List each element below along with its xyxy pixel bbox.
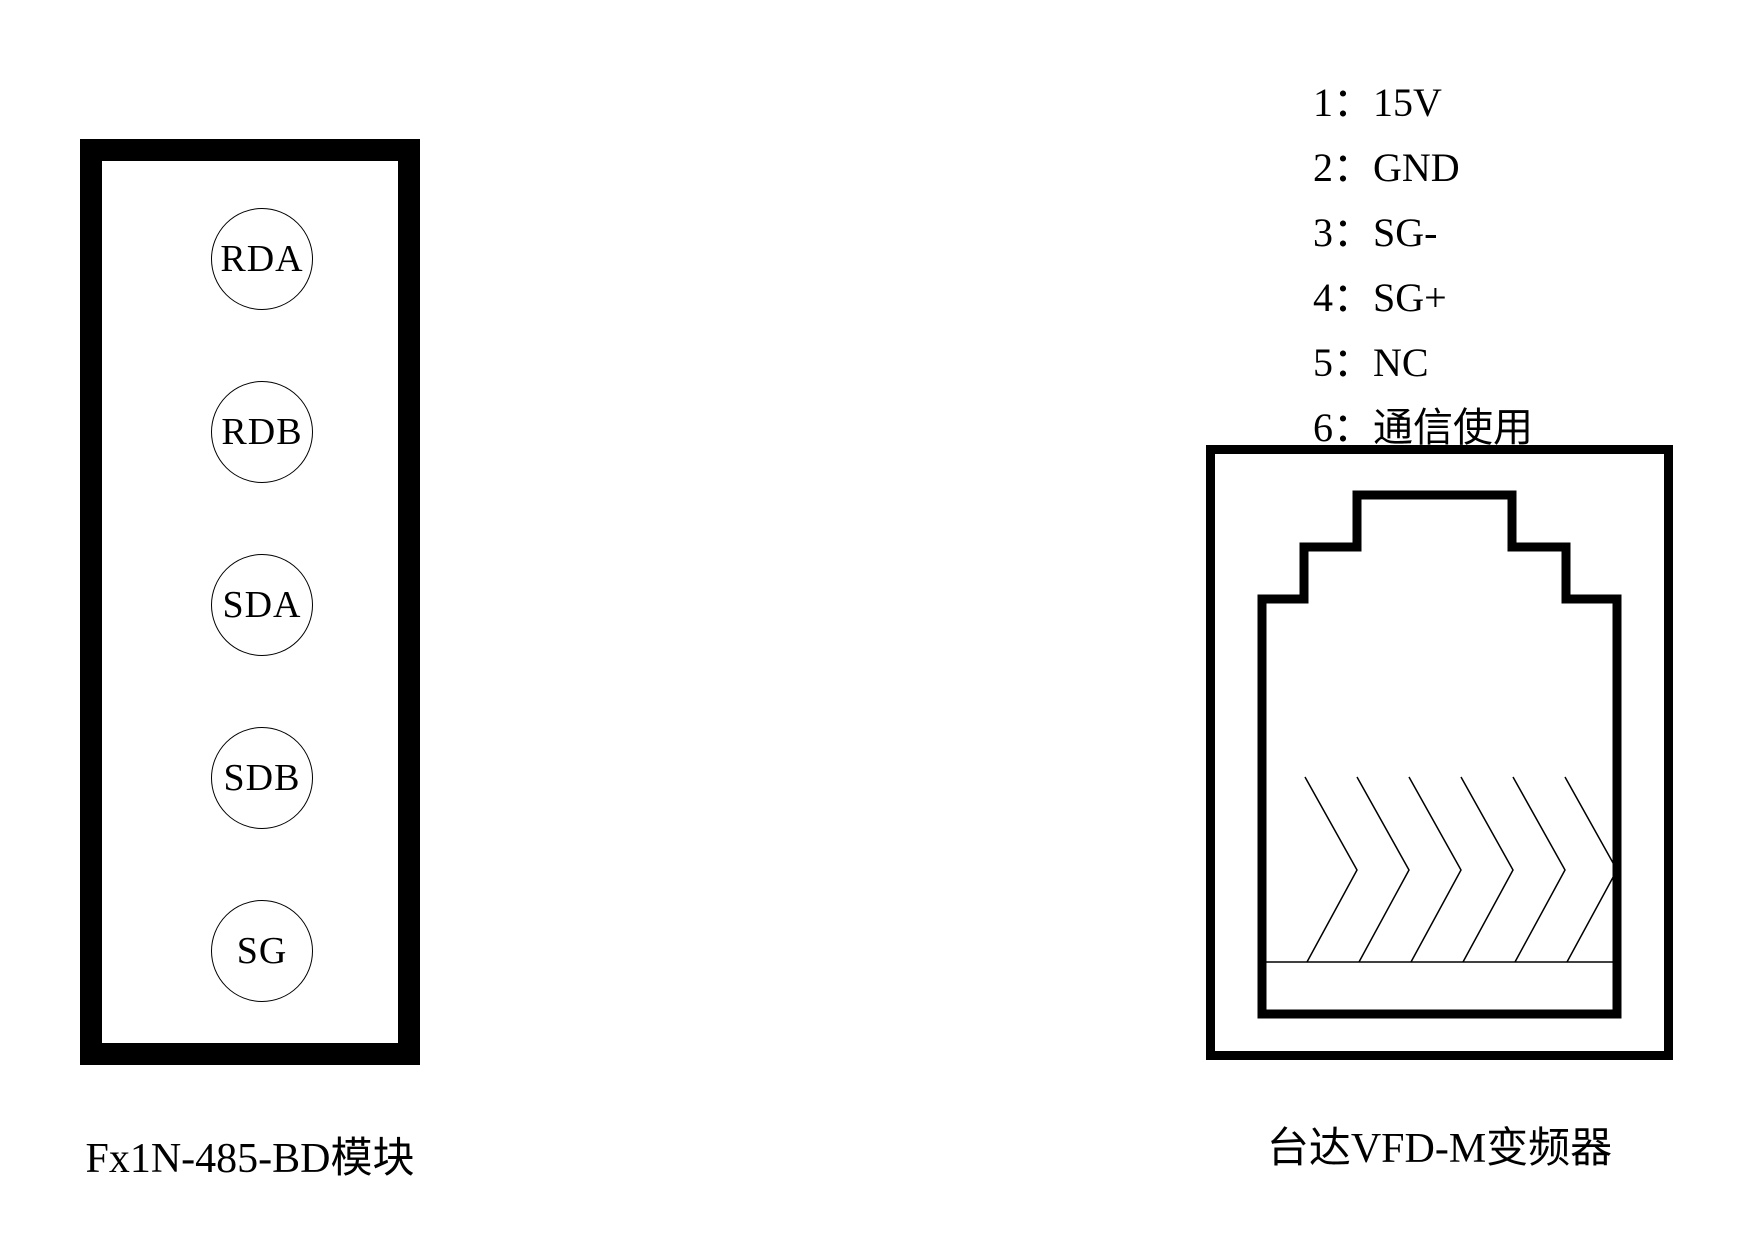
terminal-label: SDA: [222, 586, 301, 624]
terminal-circle-sdb: SDB: [211, 727, 313, 829]
terminal-circle-rda: RDA: [211, 208, 313, 310]
terminal-circle-sg: SG: [211, 900, 313, 1002]
pin-list: 1：15V 2：GND 3：SG- 4：SG+ 5：NC 6：通信使用: [1313, 70, 1533, 460]
pin-list-item-3: 3：SG-: [1313, 200, 1533, 265]
pin-list-item-2: 2：GND: [1313, 135, 1533, 200]
terminal-circle-rdb: RDB: [211, 381, 313, 483]
device-caption: 台达VFD-M变频器: [1206, 1128, 1673, 1170]
connector-outline: [1211, 450, 1669, 1056]
terminal-label: RDB: [221, 413, 302, 451]
terminal-label: SDB: [224, 759, 301, 797]
terminal-label: RDA: [220, 240, 303, 278]
pin-list-item-4: 4：SG+: [1313, 265, 1533, 330]
terminal-circle-sda: SDA: [211, 554, 313, 656]
connector-contacts-chevrons: [1305, 777, 1617, 962]
terminal-label: SG: [237, 932, 288, 970]
wiring-diagram: RDA RDB SDA SDB SG Fx1N-485-BD模块 1：15V 2…: [0, 0, 1753, 1240]
pin-list-item-1: 1：15V: [1313, 70, 1533, 135]
rj-connector-drawing: [1190, 435, 1690, 1075]
connector-cavity-outline: [1262, 495, 1617, 1014]
module-caption: Fx1N-485-BD模块: [80, 1138, 420, 1180]
pin-list-item-5: 5：NC: [1313, 330, 1533, 395]
